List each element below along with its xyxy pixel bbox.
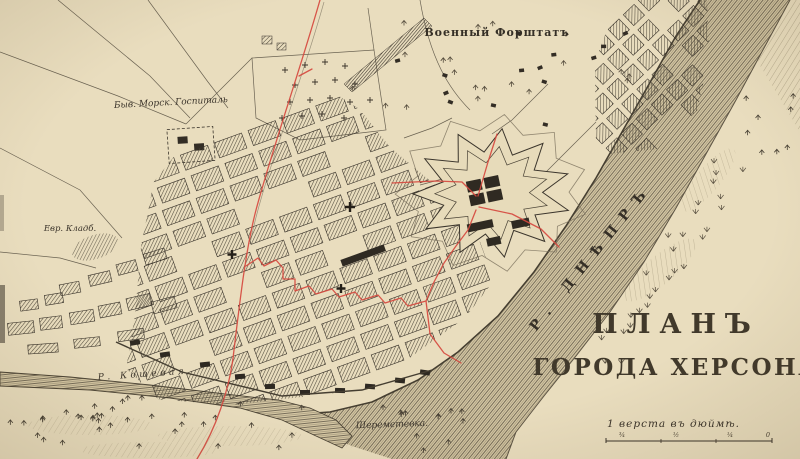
shore-block [39,316,62,331]
scan-smudge [0,195,4,231]
scale-tick-label: 0 [766,431,770,439]
shore-block [28,343,59,354]
map-canvas: ПЛАНЪ ГОРОДА ХЕРСОНА Военный Форштатъ Бы… [0,0,800,459]
shore-block [19,299,38,311]
map-title-line1: ПЛАНЪ [592,309,760,340]
scale-tick-label: ¾ [619,431,625,439]
scan-smudge [0,285,5,343]
label-cemetery: Евр. Кладб. [43,223,96,234]
wharf-building [265,384,275,389]
outlying-building [601,45,606,49]
map-title-line2: ГОРОДА ХЕРСОНА [533,354,800,381]
scale-caption: 1 верста въ дюймѣ. [607,418,740,430]
field-plot [262,36,272,44]
shore-block [7,321,34,336]
field-plot [277,43,286,50]
wharf-building [235,374,245,380]
kherson-map: ПЛАНЪ ГОРОДА ХЕРСОНА Военный Форштатъ Бы… [0,0,800,459]
scale-tick-label: ½ [673,431,679,439]
wharf-building [200,361,210,367]
label-military-suburb: Военный Форштатъ [424,26,569,39]
outlying-building [519,68,524,72]
scale-tick-label: ¼ [727,431,733,439]
outlying-building [551,53,556,57]
